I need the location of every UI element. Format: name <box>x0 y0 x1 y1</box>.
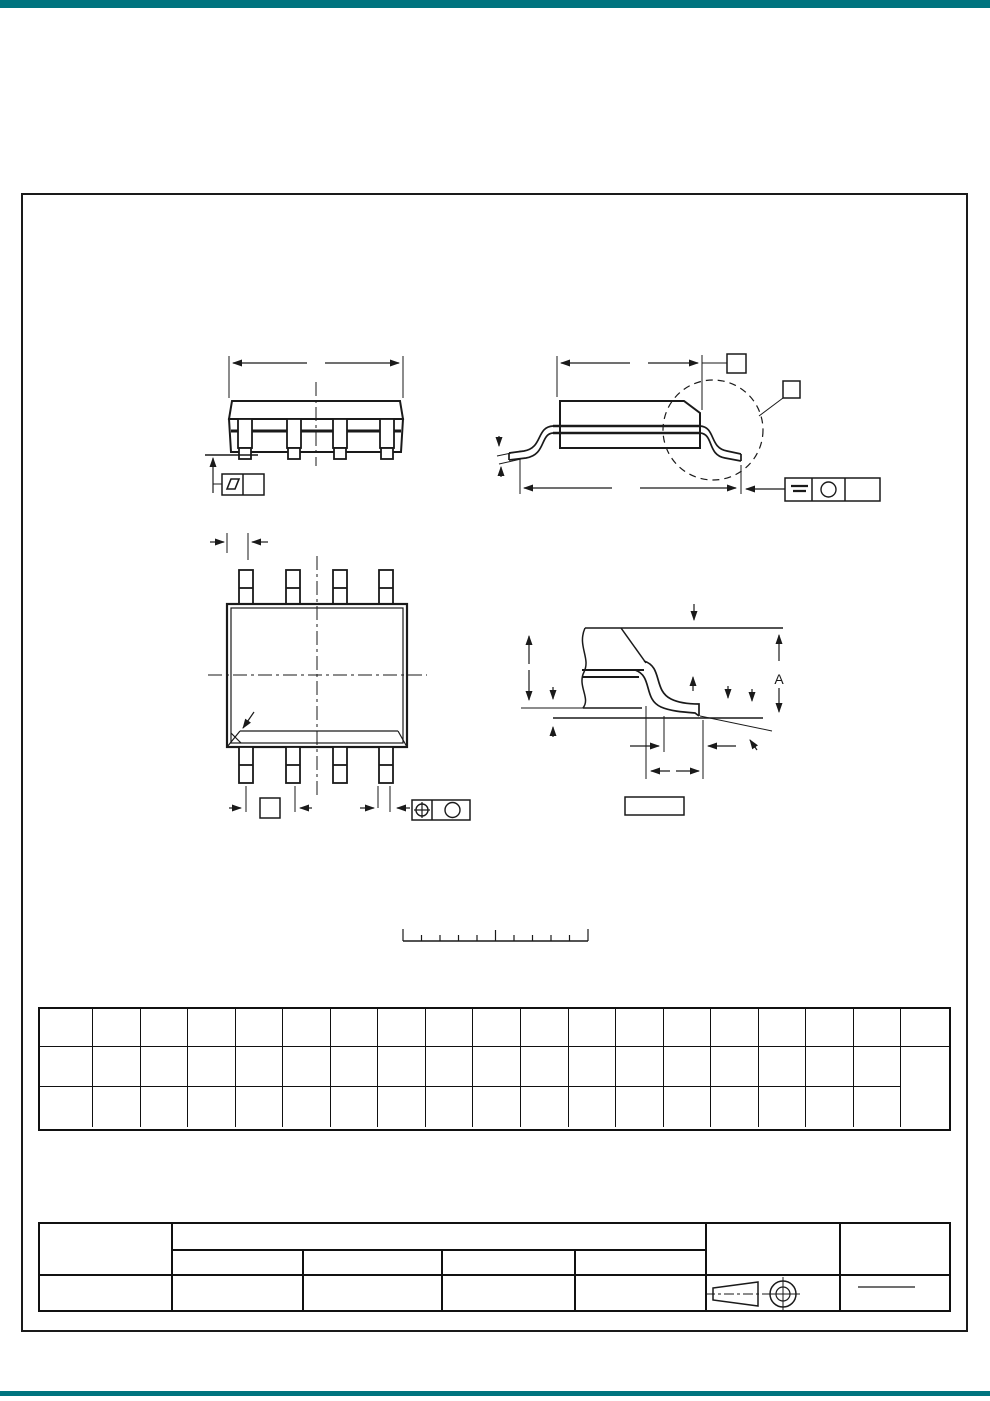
dim-table-cell <box>378 1087 426 1127</box>
dim-table-cell <box>854 1047 902 1087</box>
dim-table-cell <box>331 1009 379 1047</box>
dim-table-cell <box>854 1009 902 1047</box>
dim-table-cell <box>473 1009 521 1047</box>
side-view-right-lead <box>700 426 741 461</box>
dim-table-cell <box>426 1009 474 1047</box>
dim-table-cell <box>93 1087 141 1127</box>
dim-table-cell <box>711 1087 759 1127</box>
dim-table-cell <box>283 1087 331 1127</box>
dim-table-cell <box>426 1087 474 1127</box>
package-side-view <box>497 354 880 501</box>
title-block <box>38 1222 951 1312</box>
dim-table-cell <box>331 1047 379 1087</box>
dim-table-cell <box>854 1087 902 1127</box>
note-flag-box <box>727 354 746 373</box>
dim-table-cell <box>616 1087 664 1127</box>
dim-table-cell <box>616 1009 664 1047</box>
dim-table-cell <box>93 1047 141 1087</box>
dim-table-cell <box>283 1009 331 1047</box>
dim-table-cell <box>569 1087 617 1127</box>
dimension-label-a: A <box>774 671 784 687</box>
dim-table-cell <box>759 1009 807 1047</box>
title-block-divider <box>40 1274 949 1276</box>
lead-detail-lead <box>635 661 699 716</box>
dim-table-cell <box>40 1087 93 1127</box>
dim-table-cell <box>141 1047 189 1087</box>
dim-table-cell <box>806 1047 854 1087</box>
dim-table-cell <box>473 1047 521 1087</box>
feature-control-frame-side <box>785 478 880 501</box>
dim-table-cell <box>901 1047 949 1127</box>
dim-table-cell <box>806 1087 854 1127</box>
dim-table-cell <box>759 1047 807 1087</box>
package-outline-drawing: A <box>0 0 990 1401</box>
dim-table-cell <box>711 1047 759 1087</box>
dim-table-cell <box>236 1009 284 1047</box>
dimension-label-box <box>260 798 280 818</box>
dim-table-cell <box>711 1009 759 1047</box>
title-block-divider <box>171 1224 173 1310</box>
dim-table-cell <box>426 1047 474 1087</box>
dim-table-cell <box>40 1009 93 1047</box>
dim-table-cell <box>283 1047 331 1087</box>
package-top-view <box>208 533 470 820</box>
dimension-table <box>38 1007 951 1131</box>
dim-table-cell <box>188 1047 236 1087</box>
dim-table-cell <box>569 1009 617 1047</box>
dim-table-cell <box>806 1009 854 1047</box>
dim-table-cell <box>664 1009 712 1047</box>
dim-table-cell <box>188 1009 236 1047</box>
flatness-callout <box>213 458 264 495</box>
dim-table-cell <box>521 1087 569 1127</box>
dim-table-cell <box>616 1047 664 1087</box>
dim-table-cell <box>40 1047 93 1087</box>
scale-ruler <box>403 929 588 941</box>
dim-table-cell <box>188 1087 236 1127</box>
dim-table-cell <box>664 1087 712 1127</box>
dim-table-cell <box>141 1087 189 1127</box>
title-block-divider <box>302 1249 304 1310</box>
dim-table-cell <box>236 1087 284 1127</box>
dim-table-cell <box>901 1009 949 1047</box>
side-view-left-lead <box>509 426 553 460</box>
title-block-divider <box>839 1224 841 1310</box>
top-view-pins-upper <box>239 570 393 604</box>
title-block-divider <box>574 1249 576 1310</box>
dim-table-cell <box>93 1009 141 1047</box>
dim-table-cell <box>664 1047 712 1087</box>
dim-table-cell <box>521 1047 569 1087</box>
dim-table-cell <box>378 1047 426 1087</box>
dim-table-cell <box>236 1047 284 1087</box>
top-view-pins-lower <box>239 747 393 783</box>
dim-table-cell <box>331 1087 379 1127</box>
note-flag-box <box>783 381 800 398</box>
feature-control-frame-top <box>412 800 470 820</box>
dim-table-cell <box>378 1009 426 1047</box>
title-block-divider <box>171 1249 705 1251</box>
dim-table-cell <box>759 1087 807 1127</box>
dim-table-cell <box>473 1087 521 1127</box>
detail-label-box <box>625 797 684 815</box>
lead-detail-view: A <box>521 604 784 815</box>
dim-table-cell <box>569 1047 617 1087</box>
title-block-divider <box>441 1249 443 1310</box>
dim-table-cell <box>521 1009 569 1047</box>
package-front-view <box>205 356 403 495</box>
dim-table-cell <box>141 1009 189 1047</box>
title-block-divider <box>705 1224 707 1310</box>
